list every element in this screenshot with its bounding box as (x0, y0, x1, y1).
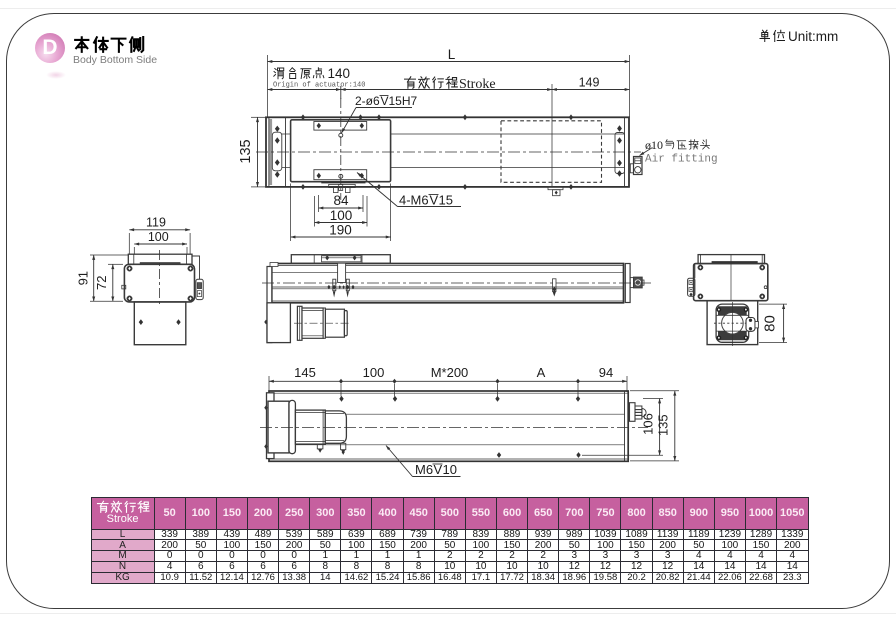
svg-text:100: 100 (148, 230, 169, 244)
svg-text:4-M6: 4-M6 (399, 193, 429, 208)
svg-text:84: 84 (333, 193, 349, 208)
svg-text:106: 106 (640, 413, 655, 435)
svg-text:L: L (448, 47, 456, 62)
svg-text:M6: M6 (415, 462, 433, 477)
svg-text:94: 94 (599, 365, 613, 380)
svg-text:Air fitting: Air fitting (645, 154, 718, 166)
svg-text:15: 15 (439, 193, 453, 208)
svg-text:15H7: 15H7 (389, 94, 418, 108)
svg-text:91: 91 (75, 271, 90, 285)
svg-text:M*200: M*200 (431, 365, 469, 380)
svg-text:135: 135 (238, 139, 254, 163)
svg-text:119: 119 (146, 216, 166, 230)
svg-text:140: 140 (328, 66, 351, 81)
svg-text:2-ø6: 2-ø6 (355, 94, 380, 108)
svg-text:145: 145 (294, 365, 316, 380)
svg-text:72: 72 (94, 276, 109, 290)
svg-text:Origin of actuator:140: Origin of actuator:140 (273, 82, 365, 90)
svg-text:V: V (381, 94, 389, 108)
svg-text:Stroke: Stroke (459, 77, 496, 92)
svg-text:A: A (537, 365, 546, 380)
svg-text:149: 149 (579, 76, 600, 90)
svg-text:100: 100 (363, 365, 385, 380)
svg-text:135: 135 (656, 414, 671, 436)
svg-text:80: 80 (762, 315, 779, 332)
svg-text:190: 190 (329, 223, 352, 238)
svg-text:10: 10 (443, 462, 457, 477)
svg-text:ø10: ø10 (645, 138, 663, 152)
svg-text:100: 100 (330, 208, 353, 223)
